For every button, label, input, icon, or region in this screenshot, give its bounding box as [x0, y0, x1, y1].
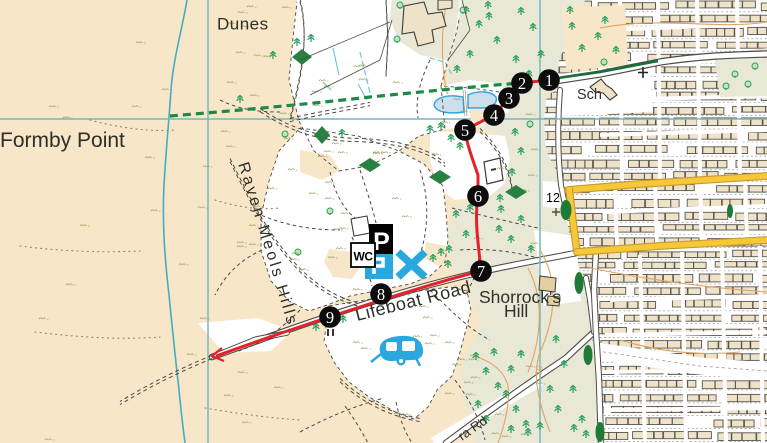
svg-text:Dunes: Dunes	[217, 15, 269, 34]
svg-text:10: 10	[533, 365, 545, 377]
svg-text:Formby Point: Formby Point	[0, 129, 125, 152]
svg-text:7: 7	[477, 262, 485, 281]
svg-text:5: 5	[461, 121, 469, 140]
svg-text:WC: WC	[354, 250, 374, 264]
svg-text:8: 8	[377, 285, 385, 304]
svg-text:Sch: Sch	[577, 87, 602, 103]
svg-text:12: 12	[546, 191, 560, 205]
svg-text:Hill: Hill	[504, 301, 528, 321]
svg-text:1: 1	[545, 71, 553, 90]
svg-text:9: 9	[326, 308, 334, 327]
svg-text:3: 3	[505, 89, 513, 108]
svg-text:4: 4	[490, 106, 498, 125]
svg-text:2: 2	[518, 74, 526, 93]
svg-text:6: 6	[474, 187, 482, 206]
